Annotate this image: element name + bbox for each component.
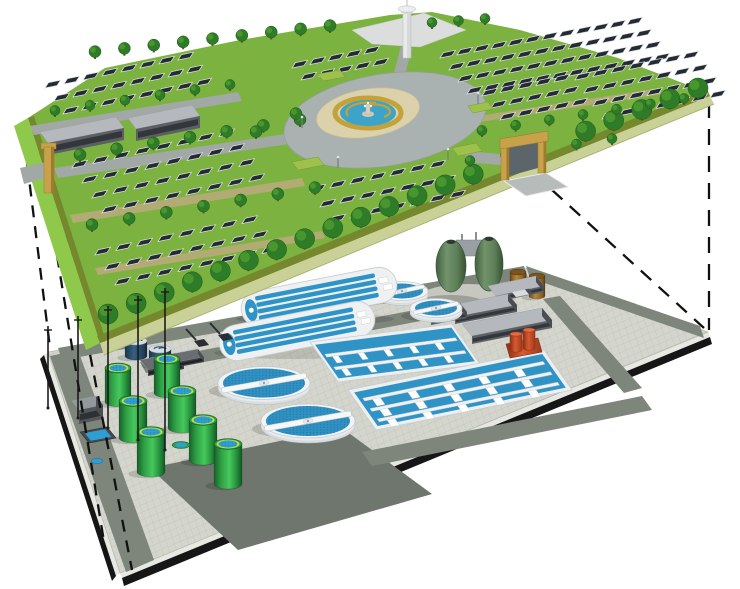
fountain-statue [366,104,370,114]
tree-highlight [291,109,297,115]
tower-shading [407,10,411,58]
tree-highlight [75,150,81,156]
tree-highlight [156,91,161,96]
solar-panel [710,90,726,98]
tree-highlight [437,177,447,187]
tree-highlight [577,123,587,133]
ground-pad-blue [91,459,103,464]
red-cylinder-top [523,328,535,332]
tree-highlight [198,201,204,207]
thickener-top [149,345,171,353]
tree-highlight [646,100,651,105]
pole-base [77,417,80,420]
tree-highlight [612,105,617,110]
tree-highlight [191,86,196,91]
tree-highlight [661,91,671,101]
green-tank-water-texture [110,365,127,371]
red-pump-cylinder [510,334,522,352]
green-tank-water-texture [173,387,192,394]
tree-highlight [258,121,264,127]
tree-highlight [511,121,516,126]
facility-exploded-view-illustration [0,0,740,589]
solar-panel [683,51,699,59]
ground-pad-water [175,443,187,448]
pole-base [107,427,110,430]
tree-highlight [178,37,184,43]
tree-highlight [273,189,279,195]
tree-highlight [86,101,91,106]
tree-highlight [51,107,56,112]
tree-highlight [380,198,390,208]
pole-base [47,407,50,410]
sludge-tank-green-body [214,444,242,489]
tree-highlight [428,19,433,24]
illustration-canvas [0,0,740,589]
tree-highlight [268,241,278,251]
gate-pillar-shade [544,139,547,173]
tree-highlight [352,209,362,219]
tree-highlight [481,15,486,20]
tree-highlight [608,135,613,140]
solar-panel [610,20,626,28]
tree-highlight [690,80,700,90]
solar-panel [674,68,690,76]
digester-egg [475,237,503,291]
gate-pillar-shade [507,146,510,180]
tree-highlight [87,220,93,226]
tree-highlight [680,95,685,100]
solar-panel [611,47,627,55]
fountain-spray [370,105,372,107]
pole-base [137,439,140,442]
egg-cap [485,237,494,241]
solar-panel [627,17,643,25]
tree-highlight [236,195,242,201]
tree-highlight [148,138,154,144]
solar-panel [619,32,635,40]
solar-panel [593,23,609,31]
green-tank-water-texture [194,416,213,423]
brown-tank-top [510,269,526,275]
tree-highlight [226,81,231,86]
pole-base [164,449,167,452]
solar-panel [602,35,618,43]
tree-highlight [207,34,213,40]
tree-highlight [184,274,194,284]
tree-highlight [605,112,615,122]
solar-panel [645,41,661,49]
solar-panel [585,38,601,46]
fountain-spray [364,105,366,107]
tower-cap [399,6,416,12]
gate-pillar-shade [51,147,54,193]
tree-highlight [325,21,331,27]
digester-egg [436,240,466,292]
tree-highlight [240,252,250,262]
tree-highlight [310,183,316,189]
tree-highlight [466,157,471,162]
sludge-tank-green-body [189,420,217,465]
solar-panel [576,26,592,34]
tree-highlight [156,284,166,294]
egg-cap [447,240,456,244]
tree-highlight [161,207,167,213]
tree-highlight [465,166,475,176]
tree-highlight [112,144,118,150]
solar-panel [45,80,61,88]
tree-highlight [266,27,272,33]
green-tank-water-texture [124,397,143,404]
tree-highlight [251,127,257,133]
green-tank-water-texture [142,428,161,435]
tree-highlight [409,188,419,198]
solar-panel [559,29,575,37]
fountain-spray [367,102,369,104]
tree-highlight [579,111,584,116]
solar-panel [628,44,644,52]
tree-highlight [212,263,222,273]
solar-panel [692,64,708,72]
tree-highlight [572,140,577,145]
green-tank-water-texture [219,440,238,447]
tree-highlight [545,116,550,121]
tree-highlight [185,132,191,138]
red-cylinder-top [510,332,522,336]
tree-highlight [296,231,306,241]
tree-highlight [296,24,302,30]
plaza-lamp [477,92,480,95]
tree-highlight [124,214,130,220]
solar-panel [636,29,652,37]
solar-panel [64,76,80,84]
sludge-tank-green-body [137,432,165,477]
tree-highlight [324,220,334,230]
tree-highlight [222,126,228,132]
plaza-lamp [337,156,340,159]
tree-highlight [121,96,126,101]
tree-highlight [478,127,483,132]
tree-highlight [237,31,243,37]
green-tank-water-texture [159,356,176,362]
plaza-lamp [447,148,450,151]
tree-highlight [90,47,96,53]
tree-highlight [149,40,155,46]
red-pump-cylinder [523,330,535,350]
tree-highlight [119,44,125,50]
tree-highlight [633,102,643,112]
tree-highlight [454,17,459,22]
plaza-lamp [301,116,304,119]
